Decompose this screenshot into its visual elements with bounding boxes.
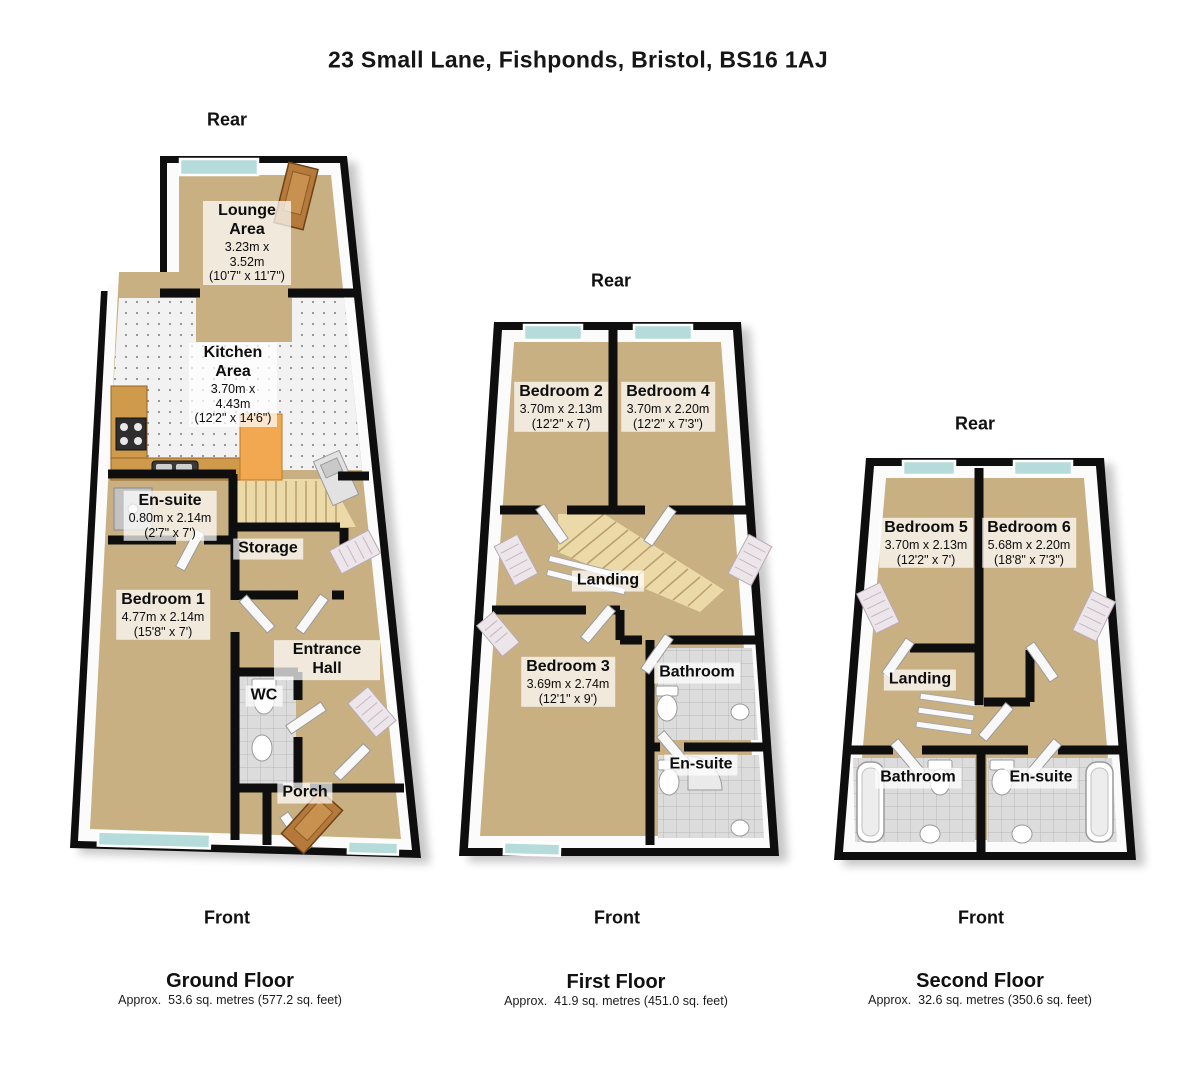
floor-area: Approx. 53.6 sq. metres (577.2 sq. feet) <box>118 993 342 1007</box>
second-landing-rail <box>916 693 976 735</box>
page-title: 23 Small Lane, Fishponds, Bristol, BS16 … <box>328 47 828 74</box>
room-name: Bedroom 2 <box>519 383 603 402</box>
lounge-kitchen-opening <box>196 292 292 342</box>
ground-front-label: Front <box>204 908 250 929</box>
kitchen-hob <box>116 418 146 450</box>
floorplan-page: 23 Small Lane, Fishponds, Bristol, BS16 … <box>0 0 1200 1072</box>
room-label-bedroom6: Bedroom 6 5.68m x 2.20m (18'8" x 7'3") <box>982 518 1076 568</box>
room-name: En-suite <box>1009 769 1072 788</box>
room-name: Landing <box>889 671 951 690</box>
room-dims-imperial: (10'7" x 11'7") <box>208 269 286 284</box>
room-name: Lounge Area <box>208 202 286 240</box>
room-name: Bedroom 5 <box>884 519 968 538</box>
room-dims-metric: 0.80m x 2.14m <box>129 511 212 526</box>
room-label-first-landing: Landing <box>572 571 644 592</box>
floor-name: Ground Floor <box>118 970 342 992</box>
room-dims-metric: 3.70m x 2.13m <box>884 538 968 553</box>
first-rear-label: Rear <box>591 271 631 292</box>
room-dims-imperial: (12'2" x 7') <box>884 552 968 567</box>
first-front-label: Front <box>594 908 640 929</box>
room-label-bedroom3: Bedroom 3 3.69m x 2.74m (12'1" x 9') <box>521 657 615 707</box>
room-label-lounge: Lounge Area 3.23m x 3.52m (10'7" x 11'7"… <box>203 201 291 285</box>
room-name: Bedroom 4 <box>626 383 710 402</box>
room-dims-metric: 3.23m x 3.52m <box>208 240 286 270</box>
room-name: Bedroom 3 <box>526 658 610 677</box>
room-dims-imperial: (2'7" x 7') <box>129 525 212 540</box>
ground-rear-label: Rear <box>207 110 247 131</box>
room-label-porch: Porch <box>277 783 332 804</box>
room-dims-metric: 5.68m x 2.20m <box>987 538 1071 553</box>
room-name: Kitchen Area <box>194 344 272 382</box>
room-dims-imperial: (18'8" x 7'3") <box>987 552 1071 567</box>
room-name: Landing <box>577 572 639 591</box>
floor-area: Approx. 41.9 sq. metres (451.0 sq. feet) <box>504 994 728 1008</box>
floor-name: Second Floor <box>868 970 1092 992</box>
floor-name: First Floor <box>504 971 728 993</box>
room-dims-metric: 3.70m x 4.43m <box>194 382 272 412</box>
room-label-second-ensuite: En-suite <box>1004 768 1077 789</box>
room-label-wc: WC <box>246 686 283 707</box>
room-dims-imperial: (12'2" x 7'3") <box>626 416 710 431</box>
room-name: WC <box>251 687 278 706</box>
room-label-kitchen: Kitchen Area 3.70m x 4.43m (12'2" x 14'6… <box>189 343 277 427</box>
room-dims-metric: 3.70m x 2.13m <box>519 402 603 417</box>
ground-floor-caption: Ground Floor Approx. 53.6 sq. metres (57… <box>118 970 342 1007</box>
room-name: Entrance Hall <box>279 641 375 679</box>
room-label-second-bathroom: Bathroom <box>875 768 961 789</box>
room-label-first-ensuite: En-suite <box>664 755 737 776</box>
first-floor-caption: First Floor Approx. 41.9 sq. metres (451… <box>504 971 728 1008</box>
room-name: En-suite <box>669 756 732 775</box>
second-rear-label: Rear <box>955 414 995 435</box>
room-name: Bedroom 1 <box>121 591 205 610</box>
room-label-first-bathroom: Bathroom <box>654 663 740 684</box>
room-dims-metric: 4.77m x 2.14m <box>121 610 205 625</box>
room-dims-imperial: (12'2" x 7') <box>519 416 603 431</box>
floor-area: Approx. 32.6 sq. metres (350.6 sq. feet) <box>868 993 1092 1007</box>
second-floor-caption: Second Floor Approx. 32.6 sq. metres (35… <box>868 970 1092 1007</box>
room-label-ground-ensuite: En-suite 0.80m x 2.14m (2'7" x 7') <box>124 491 217 541</box>
room-dims-metric: 3.70m x 2.20m <box>626 402 710 417</box>
room-dims-imperial: (12'1" x 9') <box>526 691 610 706</box>
room-label-bedroom5: Bedroom 5 3.70m x 2.13m (12'2" x 7') <box>879 518 973 568</box>
room-label-storage: Storage <box>233 539 303 560</box>
second-front-label: Front <box>958 908 1004 929</box>
room-label-entrance-hall: Entrance Hall <box>274 640 380 680</box>
room-name: Bedroom 6 <box>987 519 1071 538</box>
room-name: Storage <box>238 540 298 559</box>
room-label-bedroom2: Bedroom 2 3.70m x 2.13m (12'2" x 7') <box>514 382 608 432</box>
room-dims-imperial: (15'8" x 7') <box>121 624 205 639</box>
room-label-second-landing: Landing <box>884 670 956 691</box>
room-dims-metric: 3.69m x 2.74m <box>526 677 610 692</box>
wc-basin <box>252 735 272 761</box>
room-name: Bathroom <box>880 769 956 788</box>
room-label-bedroom4: Bedroom 4 3.70m x 2.20m (12'2" x 7'3") <box>621 382 715 432</box>
room-label-bedroom1: Bedroom 1 4.77m x 2.14m (15'8" x 7') <box>116 590 210 640</box>
room-dims-imperial: (12'2" x 14'6") <box>194 411 272 426</box>
room-name: Porch <box>282 784 327 803</box>
room-name: Bathroom <box>659 664 735 683</box>
room-name: En-suite <box>129 492 212 511</box>
